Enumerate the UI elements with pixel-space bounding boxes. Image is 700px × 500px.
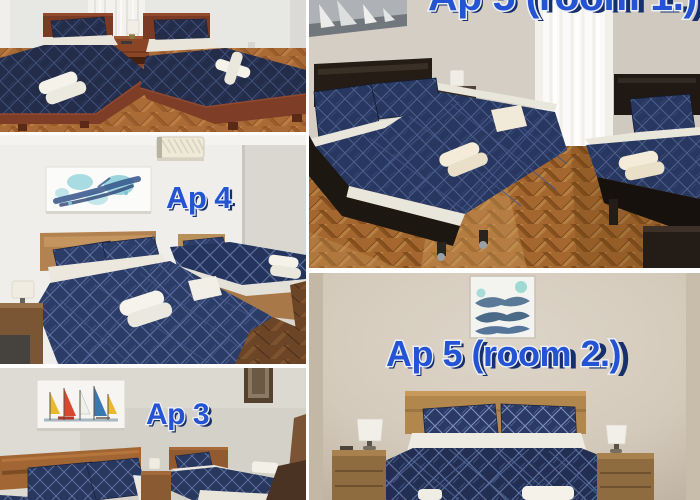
- svg-text:Ap 5 (room 2.): Ap 5 (room 2.): [386, 333, 621, 374]
- svg-text:Ap 5 (room 1.): Ap 5 (room 1.): [428, 0, 697, 19]
- svg-text:Ap 4: Ap 4: [166, 180, 232, 215]
- svg-text:Ap 3: Ap 3: [146, 398, 209, 431]
